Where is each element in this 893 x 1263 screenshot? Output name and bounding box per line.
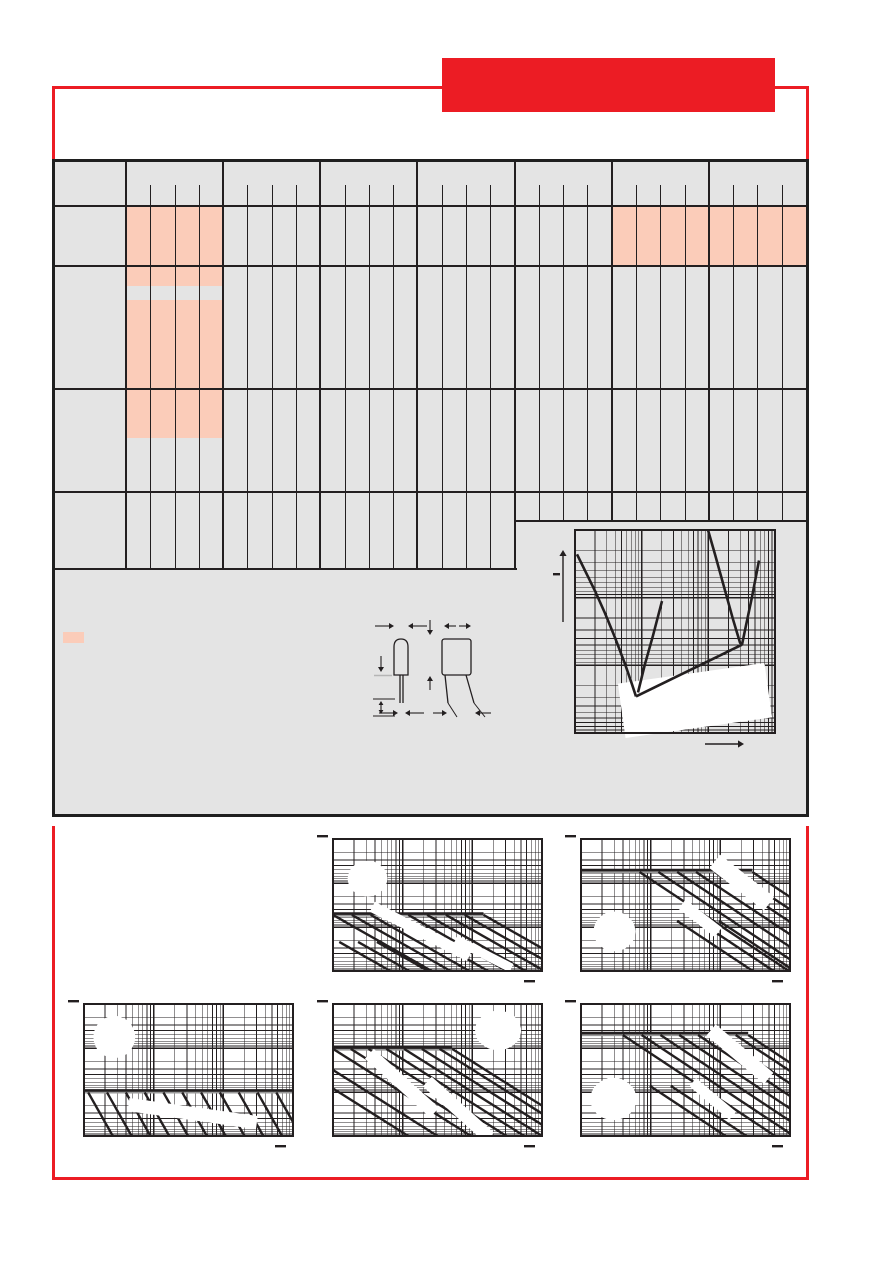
table-subcolumn-rule — [393, 205, 394, 568]
table-subcolumn-rule — [685, 205, 686, 520]
table-group-rule — [708, 162, 710, 520]
table-subcolumn-tick — [539, 185, 540, 205]
table-row-rule — [55, 388, 806, 390]
table-subcolumn-rule — [563, 205, 564, 520]
table-subcolumn-tick — [393, 185, 394, 205]
table-subcolumn-tick — [175, 185, 176, 205]
pulse-characteristics-chart-4 — [316, 998, 556, 1150]
table-subcolumn-tick — [466, 185, 467, 205]
header-rule-right — [775, 86, 809, 89]
table-subcolumn-rule — [733, 205, 734, 520]
table-subcolumn-tick — [442, 185, 443, 205]
table-subcolumn-tick — [636, 185, 637, 205]
table-subcolumn-tick — [490, 185, 491, 205]
table-row-rule — [55, 491, 806, 493]
table-subcolumn-tick — [150, 185, 151, 205]
table-subcolumn-rule — [636, 205, 637, 520]
charts-frame-bottom — [52, 1177, 809, 1180]
table-subcolumn-rule — [369, 205, 370, 568]
table-subcolumn-rule — [272, 205, 273, 568]
table-subcolumn-rule — [782, 205, 783, 520]
table-subcolumn-tick — [782, 185, 783, 205]
table-subcolumn-tick — [733, 185, 734, 205]
table-subcolumn-tick — [345, 185, 346, 205]
table-subcolumn-tick — [369, 185, 370, 205]
table-row-rule — [55, 568, 517, 570]
table-row-rule — [55, 205, 806, 207]
pulse-characteristics-chart-5 — [564, 998, 804, 1150]
table-subcolumn-rule — [175, 205, 176, 568]
table-subcolumn-tick — [296, 185, 297, 205]
table-group-rule — [611, 162, 613, 520]
table-group-rule — [125, 162, 127, 568]
capacitor-dimension-drawing — [367, 606, 517, 756]
impedance-frequency-chart — [553, 522, 793, 754]
datasheet-page — [0, 0, 893, 1263]
charts-frame-left — [52, 826, 55, 1180]
table-subcolumn-rule — [757, 205, 758, 520]
table-subcolumn-tick — [272, 185, 273, 205]
table-subcolumn-rule — [345, 205, 346, 568]
pulse-characteristics-chart-3 — [67, 998, 307, 1150]
header-rule-left — [52, 86, 443, 89]
table-subcolumn-tick — [563, 185, 564, 205]
table-group-rule — [222, 162, 224, 568]
table-subcolumn-rule — [490, 205, 491, 568]
table-subcolumn-rule — [247, 205, 248, 568]
table-subcolumn-tick — [660, 185, 661, 205]
charts-frame-right — [806, 826, 809, 1180]
table-subcolumn-tick — [247, 185, 248, 205]
table-group-rule — [514, 162, 516, 568]
table-subcolumn-rule — [442, 205, 443, 568]
table-subcolumn-tick — [685, 185, 686, 205]
table-group-rule — [416, 162, 418, 568]
table-subcolumn-rule — [199, 205, 200, 568]
header-drop-rule-right — [806, 86, 809, 159]
title-banner — [442, 58, 775, 112]
table-subcolumn-rule — [466, 205, 467, 568]
table-subcolumn-rule — [150, 205, 151, 568]
table-row-rule — [55, 265, 806, 267]
header-drop-rule-left — [52, 86, 55, 159]
spec-panel — [52, 159, 809, 817]
table-subcolumn-rule — [539, 205, 540, 520]
table-subcolumn-tick — [199, 185, 200, 205]
legend-highlight-swatch — [63, 632, 84, 643]
table-group-rule — [319, 162, 321, 568]
table-subcolumn-tick — [757, 185, 758, 205]
table-subcolumn-tick — [587, 185, 588, 205]
table-subcolumn-rule — [587, 205, 588, 520]
table-subcolumn-rule — [296, 205, 297, 568]
pulse-characteristics-chart-2 — [564, 833, 804, 985]
pulse-characteristics-chart-1 — [316, 833, 556, 985]
table-subcolumn-rule — [660, 205, 661, 520]
